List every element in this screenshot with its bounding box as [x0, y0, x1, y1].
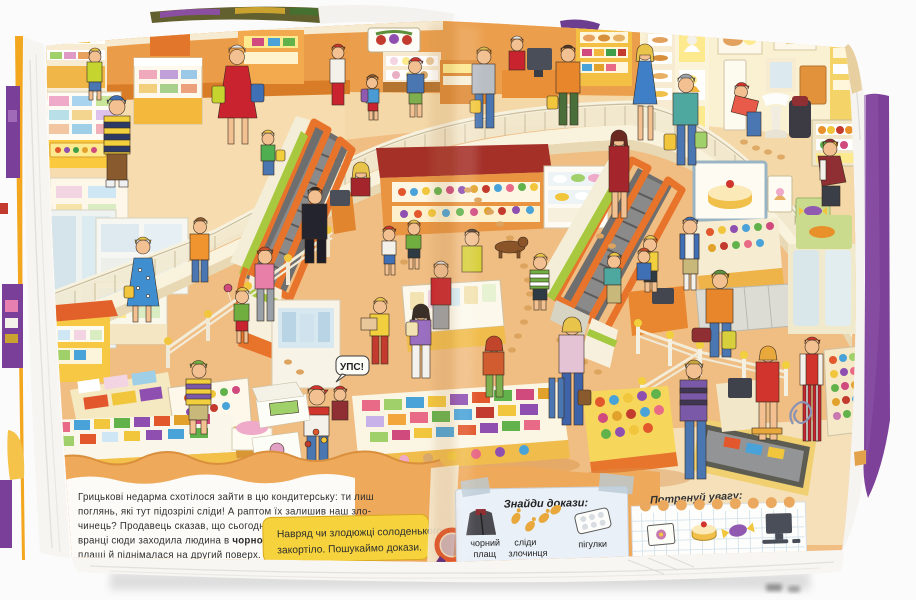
svg-text:Грицькові недарма схотілося за: Грицькові недарма схотілося зайти в цю к…: [78, 492, 374, 503]
svg-text:злочинця: злочинця: [508, 548, 547, 559]
svg-text:Знайди докази:: Знайди докази:: [504, 497, 589, 510]
svg-text:сліди: сліди: [514, 537, 536, 547]
svg-text:вранці сюди заходила людина в: вранці сюди заходила людина в чорному: [78, 536, 276, 547]
svg-text:поглянь, які тут підозрілі слі: поглянь, які тут підозрілі сліди! А рапт…: [78, 507, 371, 518]
svg-text:чинець? Продавець сказав, що с: чинець? Продавець сказав, що сьогодні: [78, 521, 267, 532]
svg-text:пігулки: пігулки: [578, 539, 607, 549]
svg-text:УПС!: УПС!: [340, 362, 364, 373]
svg-text:чорний: чорний: [470, 538, 500, 549]
svg-text:плащ: плащ: [473, 549, 496, 559]
